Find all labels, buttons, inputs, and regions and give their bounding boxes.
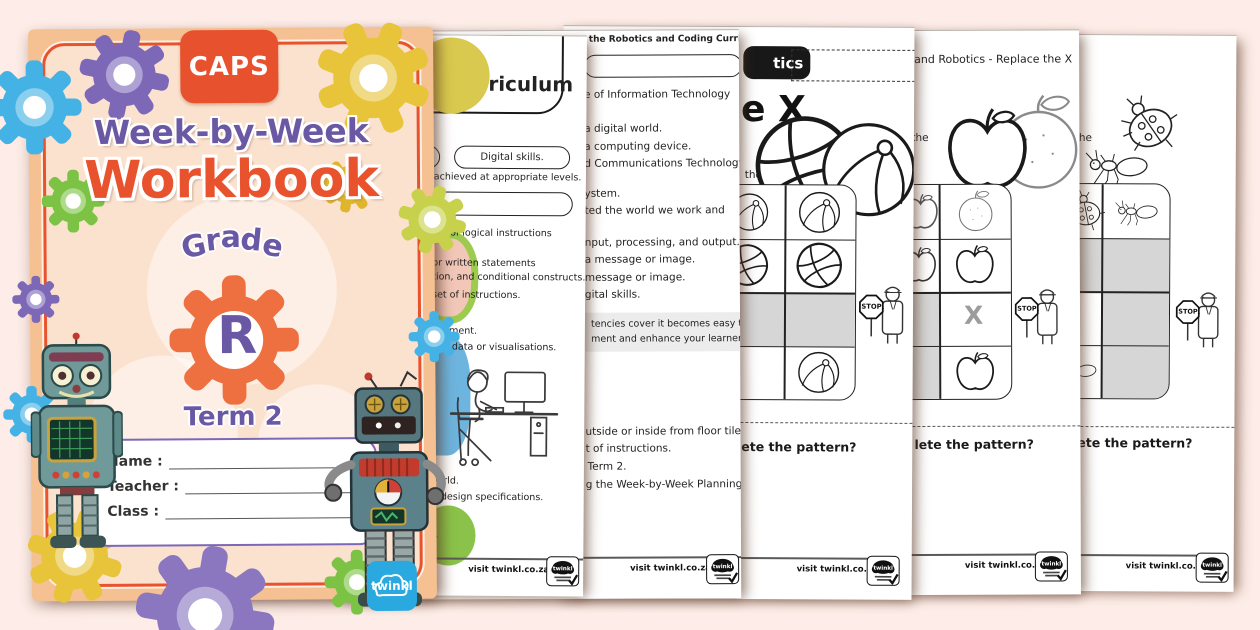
robot-icon xyxy=(30,331,124,560)
stop-sign-label: STOP xyxy=(1014,305,1040,313)
text-fragment: ted the world we work and xyxy=(585,204,725,217)
beach-ball-icon xyxy=(797,190,841,234)
text-fragment: utside or inside from floor tiles) xyxy=(585,425,741,438)
question-text: ete the pattern? xyxy=(741,439,856,455)
twinkl-quality-badge: twinkl xyxy=(706,554,739,584)
basketball-icon xyxy=(788,234,851,297)
text-fragment: Term 2. xyxy=(588,461,627,473)
child-at-computer-icon xyxy=(437,353,568,480)
grade-word: Grade xyxy=(29,221,434,259)
text-fragment: nput, processing, and output. xyxy=(585,236,740,249)
text-fragment: tencies cover it becomes easy to xyxy=(591,317,741,332)
caps-label: CAPS xyxy=(189,51,270,82)
twinkl-badge-label: twinkl xyxy=(713,564,733,570)
grid-cell-grey xyxy=(1101,291,1169,345)
text-fragment: tion, and conditional constructs. xyxy=(432,271,585,283)
check-icon xyxy=(889,574,897,583)
check-icon xyxy=(1058,570,1066,579)
keyword-pill xyxy=(584,54,741,78)
text-fragment: gital skills. xyxy=(585,289,641,301)
text-fragment: e achieved at appropriate levels. xyxy=(425,171,582,183)
footer-visit-link[interactable]: visit twinkl.co.za xyxy=(468,565,549,576)
gear-icon xyxy=(12,275,60,323)
workbook-cover: CAPS Week-by-Week Workbook Grade R Term … xyxy=(28,27,437,602)
apple-icon xyxy=(941,104,1033,196)
stop-sign-label: STOP xyxy=(1175,308,1201,316)
beach-ball-icon xyxy=(797,350,841,394)
text-fragment: ystem. xyxy=(584,188,620,200)
gear-icon xyxy=(408,310,460,362)
check-icon xyxy=(729,573,737,582)
stop-sign-character: STOP xyxy=(856,280,912,348)
page-heading-fragment: and Robotics - Replace the X xyxy=(914,52,1072,66)
text-fragment: g the Week-by-Week Planning. xyxy=(586,478,742,491)
keyword-pill-digital-skills: Digital skills. xyxy=(454,146,570,170)
twinkl-logo-label: twinkl xyxy=(371,579,413,593)
lemon-icon xyxy=(954,189,998,233)
twinkl-badge-label: twinkl xyxy=(1042,561,1062,567)
stop-sign-character: STOP xyxy=(1173,286,1227,352)
twinkl-quality-badge: twinkl xyxy=(867,556,900,586)
footer-visit-link[interactable]: visit twinkl.co.za xyxy=(965,561,1046,571)
text-fragment: ment and enhance your learners' xyxy=(591,332,741,347)
caps-badge: CAPS xyxy=(180,30,279,104)
text-fragment: he xyxy=(1079,132,1092,144)
twinkl-badge-label: twinkl xyxy=(873,566,893,572)
grid-cell-grey xyxy=(1101,345,1169,399)
twinkl-badge-label: twinkl xyxy=(553,566,573,572)
twinkl-quality-badge: twinkl xyxy=(1196,553,1229,583)
twinkl-logo[interactable]: twinkl xyxy=(367,561,417,611)
stop-sign-character: STOP xyxy=(1012,282,1066,348)
grade-gear: R xyxy=(168,274,301,407)
apple-icon xyxy=(953,243,997,287)
footer-visit-link[interactable]: visit twinkl.co.za xyxy=(797,564,878,574)
grade-letter: R xyxy=(217,306,257,366)
twinkl-resource-preview: he STOP ete the pattern? visit twinkl.co… xyxy=(0,0,1260,630)
text-fragment: t of instructions. xyxy=(586,442,672,454)
name-dashed-box xyxy=(791,49,914,82)
stop-sign-label: STOP xyxy=(858,303,885,311)
footer-visit-link[interactable]: visit twinkl.co.za xyxy=(1126,561,1207,571)
check-icon xyxy=(1218,571,1226,580)
ant-icon xyxy=(1108,197,1164,227)
check-icon xyxy=(569,575,577,584)
footer-visit-link[interactable]: visit twinkl.co.za xyxy=(630,563,711,573)
question-text: ete the pattern? xyxy=(1077,435,1192,451)
workbook-title-line2: Workbook xyxy=(29,149,434,212)
pill-label: Digital skills. xyxy=(480,152,543,163)
twinkl-quality-badge: twinkl xyxy=(546,556,579,586)
text-fragment: message or image. xyxy=(585,271,686,283)
workbook-title-line1: Week-by-Week xyxy=(29,111,434,153)
text-fragment: d Communications Technology) xyxy=(584,157,741,170)
twinkl-badge-label: twinkl xyxy=(1202,563,1222,569)
text-fragment: a computing device. xyxy=(584,140,691,152)
grade-word-text: Grade xyxy=(181,222,283,258)
text-fragment: e of Information Technology xyxy=(584,88,730,101)
text-fragment: set of instructions. xyxy=(432,289,520,301)
x-mark: X xyxy=(964,301,983,330)
text-fragment: a message or image. xyxy=(585,253,695,265)
page-heading-fragment: the Robotics and Coding Curriculum. xyxy=(589,34,741,45)
apple-icon xyxy=(953,350,997,394)
text-fragment: a digital world. xyxy=(584,122,662,134)
text-fragment: the xyxy=(911,132,928,144)
twinkl-quality-badge: twinkl xyxy=(1035,551,1068,581)
question-text: lete the pattern? xyxy=(914,437,1033,452)
highlight-note: tencies cover it becomes easy to ment an… xyxy=(583,312,741,352)
